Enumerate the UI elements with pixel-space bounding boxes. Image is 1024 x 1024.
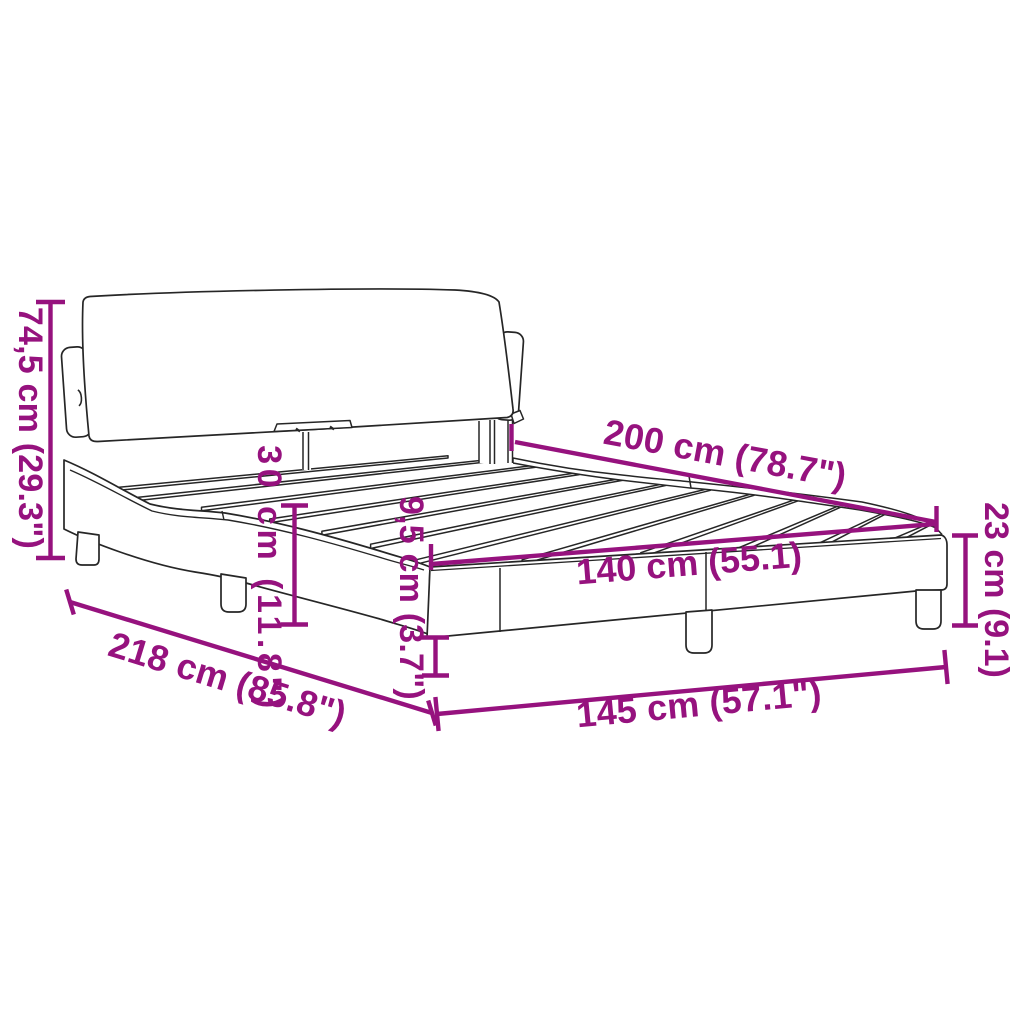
- svg-text:9,5 cm (3.7"): 9,5 cm (3.7"): [392, 496, 430, 700]
- svg-text:23 cm (9.1): 23 cm (9.1): [977, 502, 1015, 678]
- svg-text:74,5 cm (29.3"): 74,5 cm (29.3"): [11, 307, 49, 549]
